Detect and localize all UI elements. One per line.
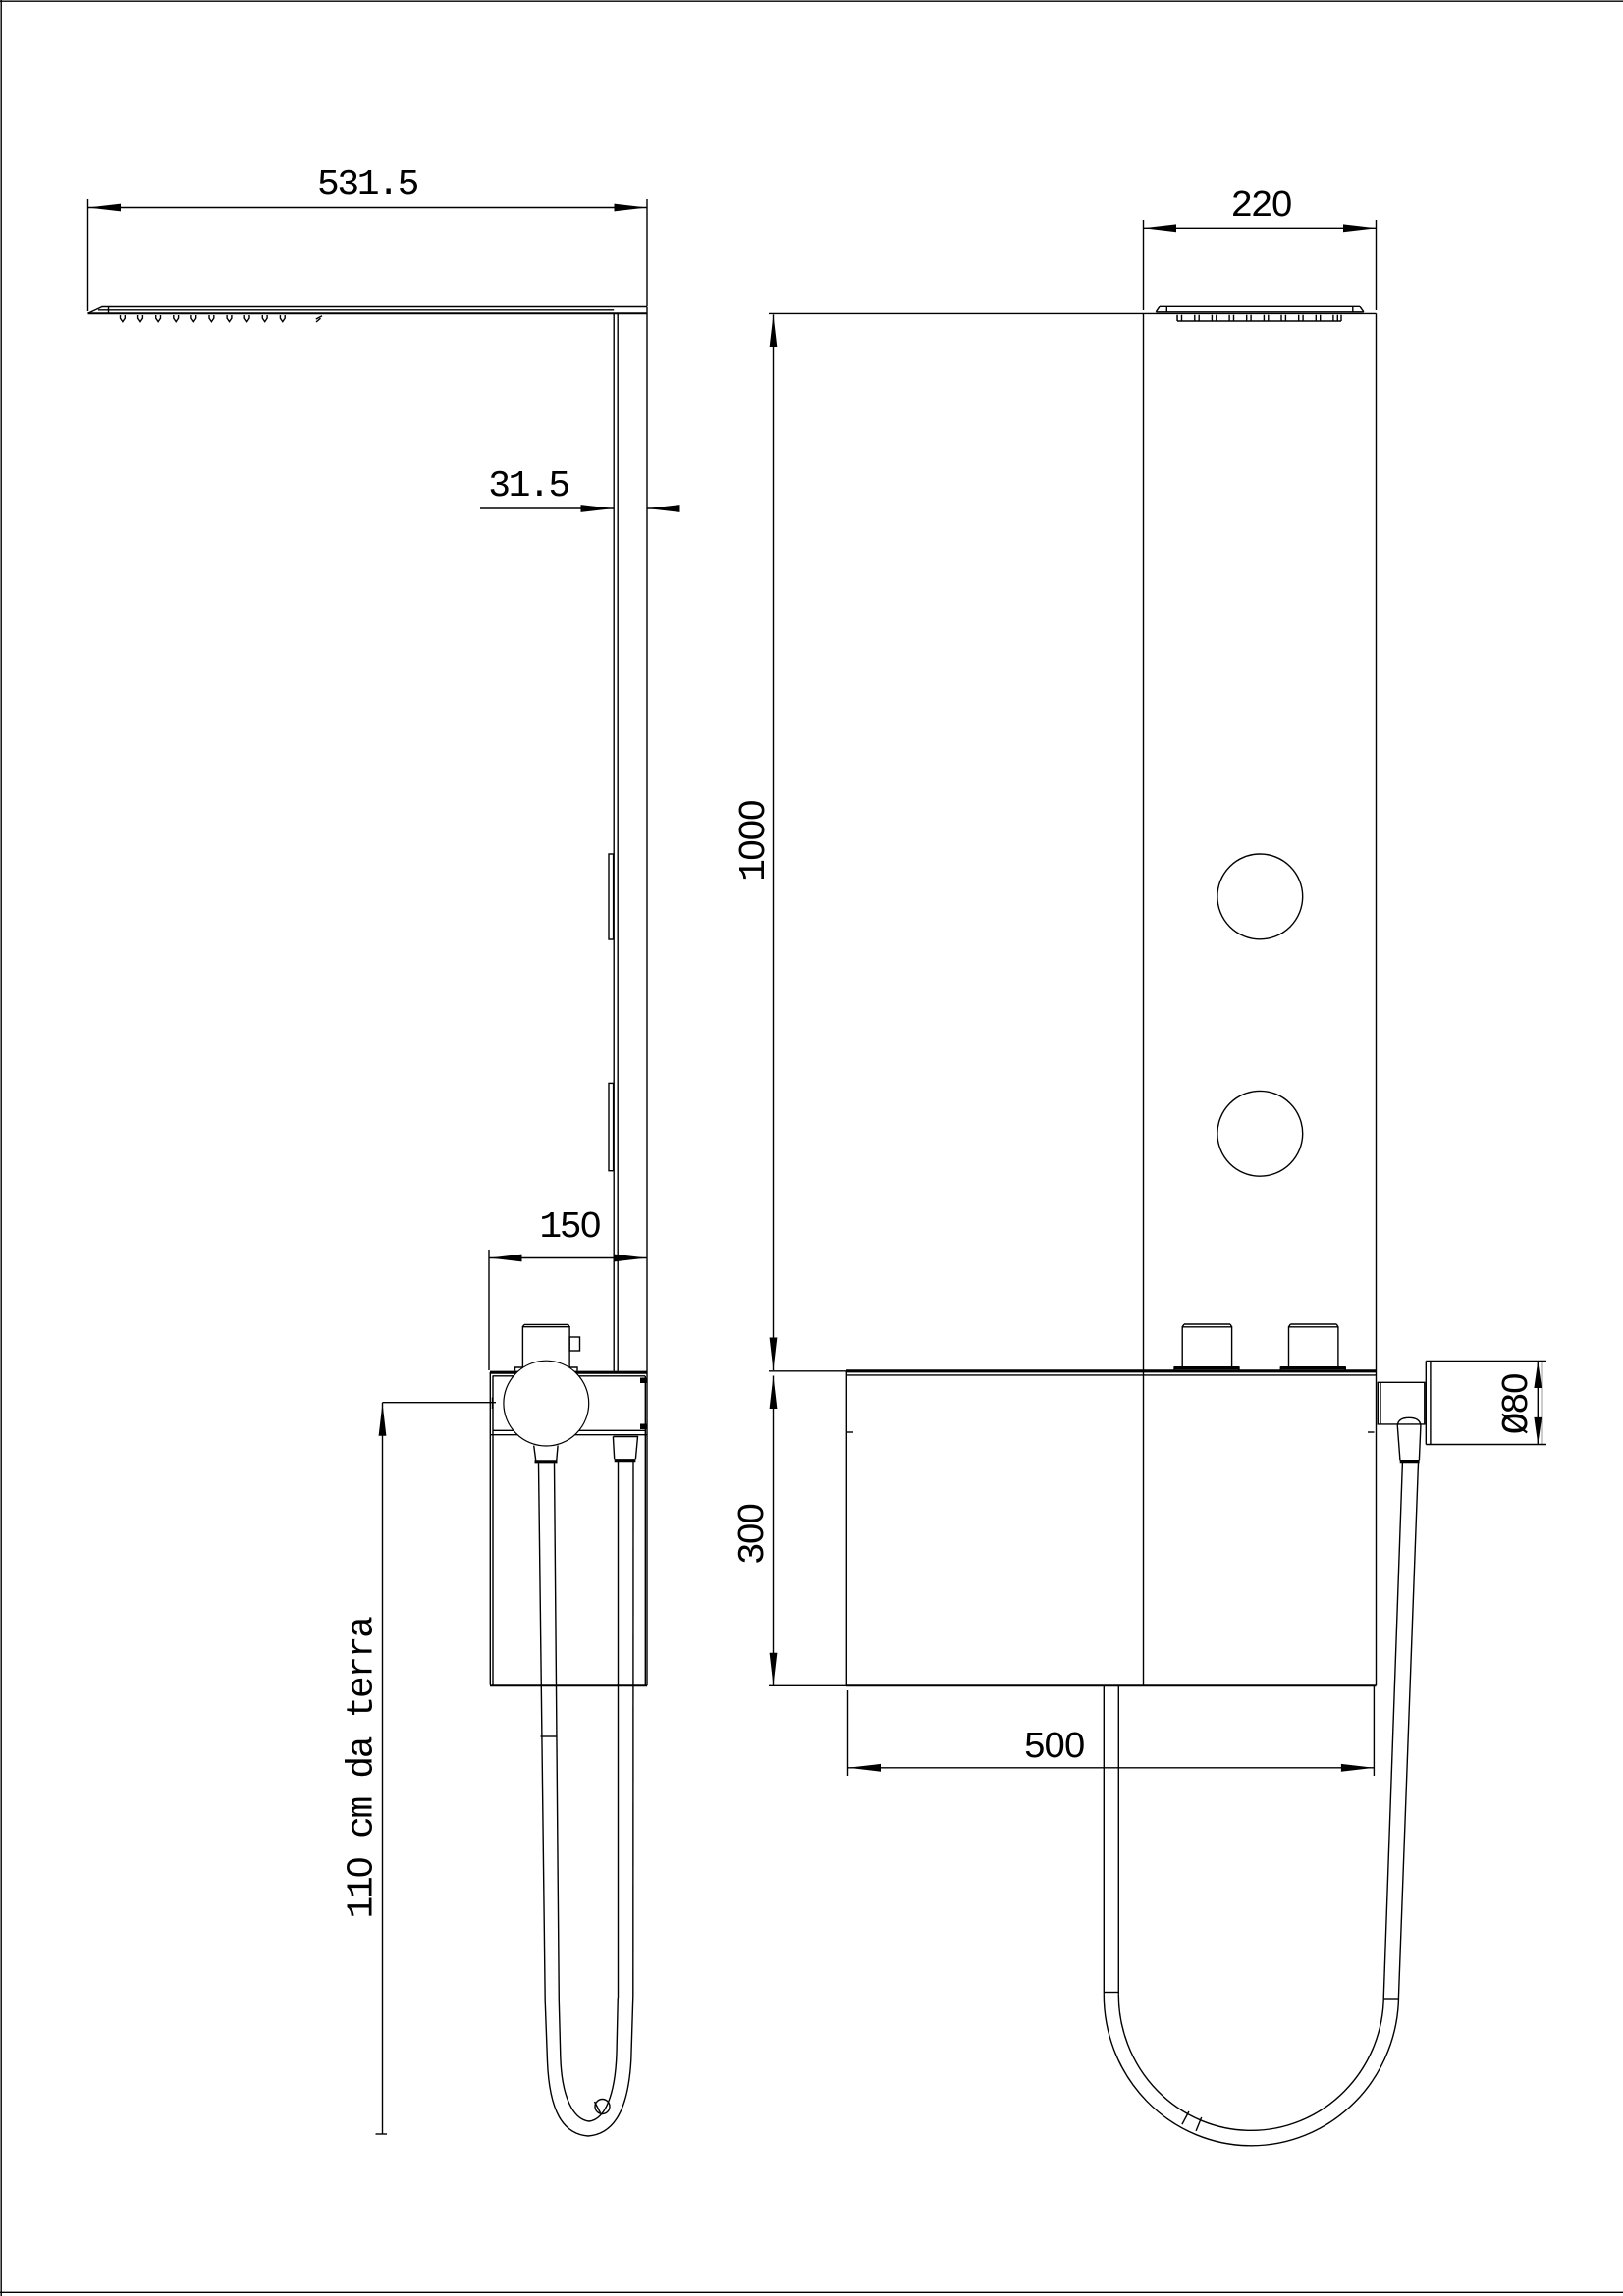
svg-text:500: 500 — [1023, 1727, 1084, 1769]
svg-text:220: 220 — [1230, 186, 1291, 228]
svg-text:31.5: 31.5 — [488, 465, 568, 507]
svg-text:Ø80: Ø80 — [1496, 1374, 1539, 1435]
svg-text:300: 300 — [732, 1504, 775, 1565]
svg-text:1000: 1000 — [733, 801, 776, 881]
svg-text:110 cm da terra: 110 cm da terra — [342, 1617, 384, 1919]
svg-text:531.5: 531.5 — [317, 164, 418, 206]
svg-text:150: 150 — [539, 1206, 600, 1249]
